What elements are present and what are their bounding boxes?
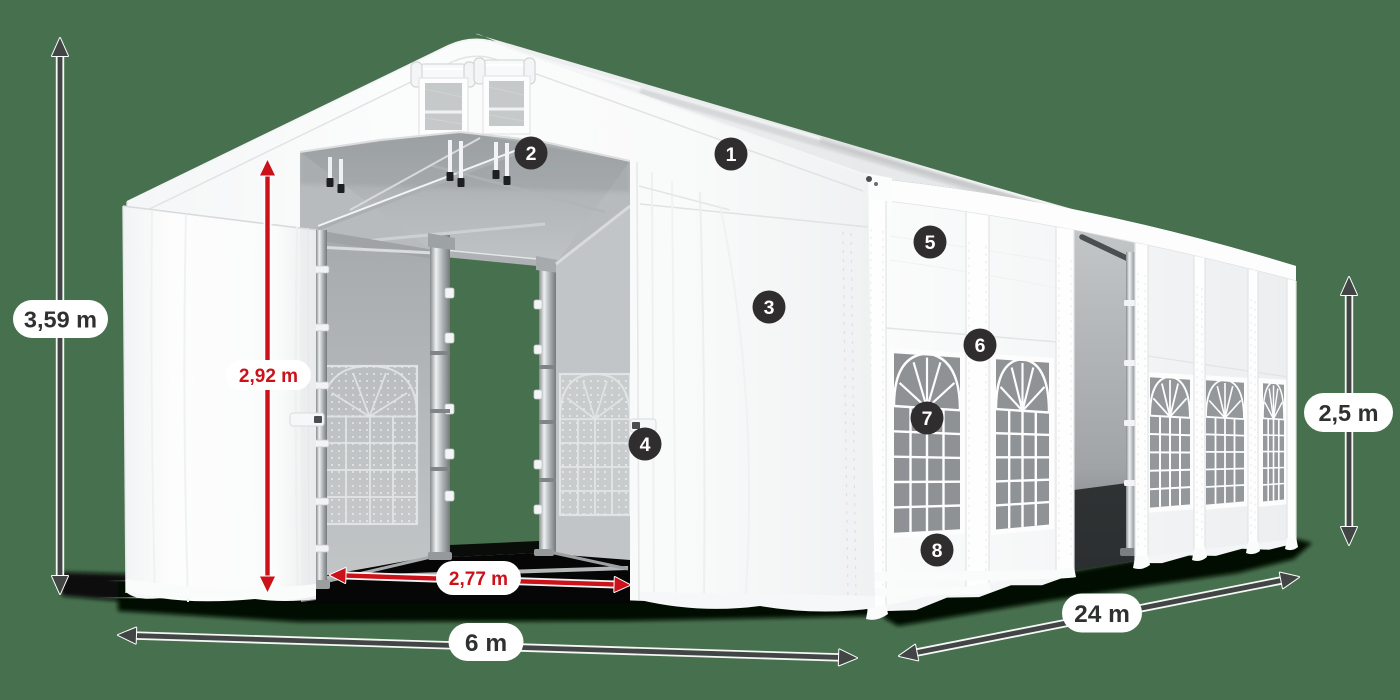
svg-text:4: 4 (640, 434, 651, 456)
svg-text:2,5 m: 2,5 m (1318, 400, 1378, 426)
svg-text:6: 6 (975, 335, 986, 357)
svg-text:3,59 m: 3,59 m (24, 307, 97, 333)
svg-text:8: 8 (932, 540, 943, 562)
svg-text:3: 3 (764, 297, 775, 319)
svg-text:2: 2 (526, 143, 537, 165)
svg-text:2,92 m: 2,92 m (239, 366, 298, 387)
svg-text:7: 7 (922, 408, 933, 430)
svg-text:2,77 m: 2,77 m (449, 569, 508, 590)
svg-text:24 m: 24 m (1074, 601, 1130, 628)
svg-text:1: 1 (726, 144, 737, 166)
svg-text:6 m: 6 m (465, 630, 507, 657)
svg-text:5: 5 (925, 232, 936, 254)
